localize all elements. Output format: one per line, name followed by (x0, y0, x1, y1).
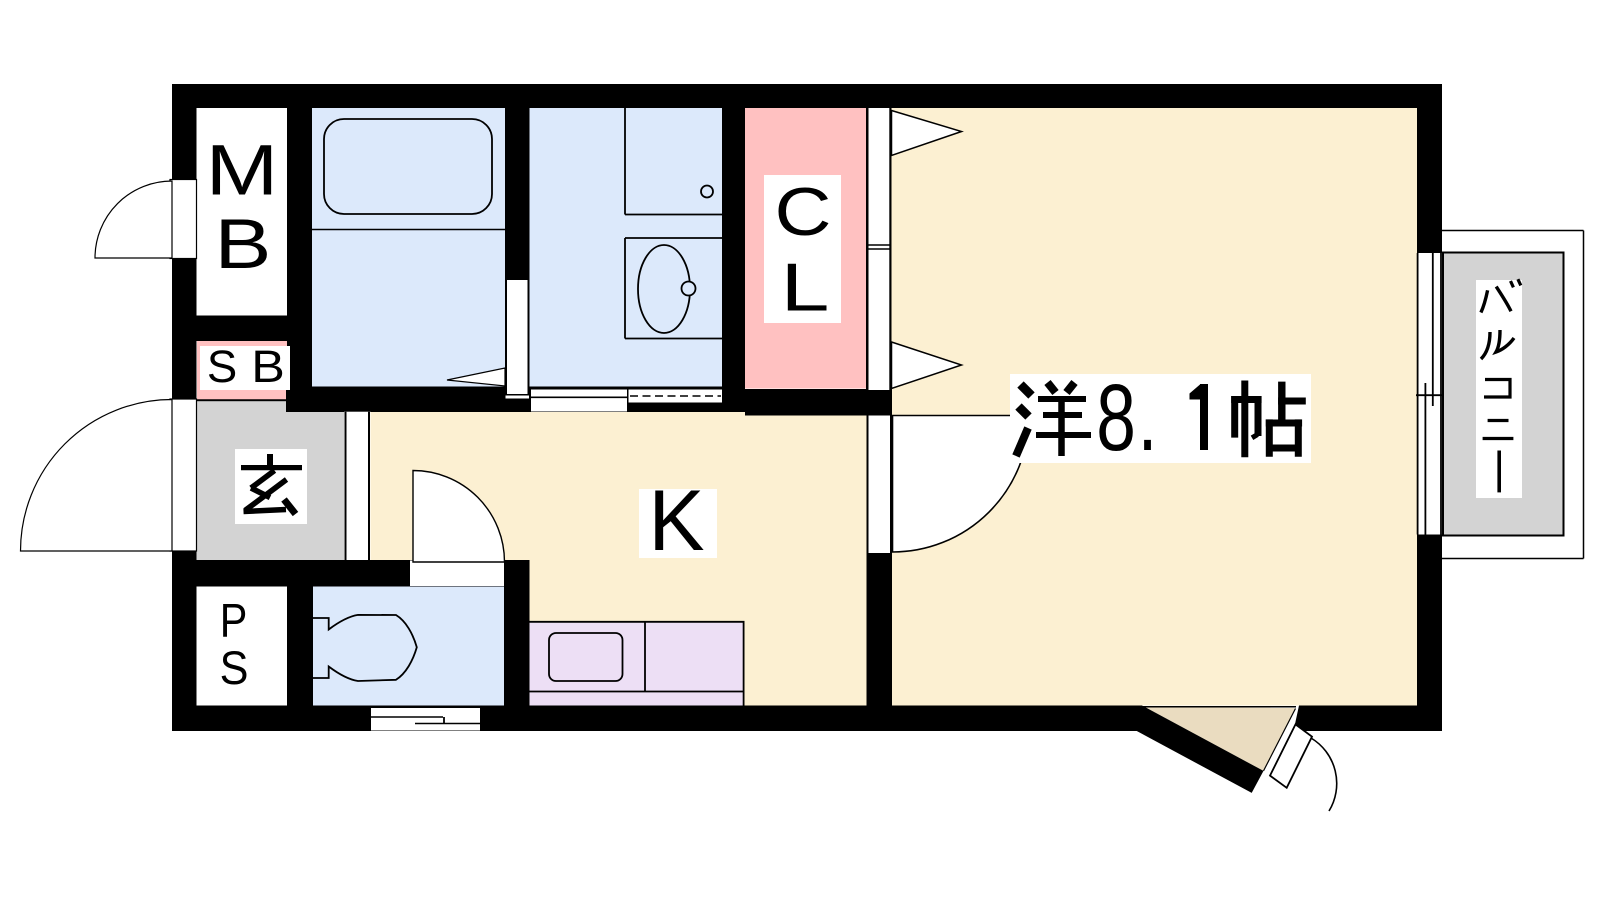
svg-text:M: M (206, 130, 279, 210)
svg-text:S: S (207, 341, 237, 392)
svg-text:L: L (781, 249, 830, 325)
svg-text:K: K (648, 473, 704, 569)
svg-text:B: B (215, 204, 272, 283)
svg-text:S: S (220, 641, 249, 694)
svg-text:8: 8 (1096, 364, 1136, 470)
svg-text:P: P (220, 595, 248, 647)
svg-text:B: B (251, 342, 285, 392)
svg-text:C: C (775, 173, 832, 250)
svg-text:.: . (1138, 364, 1158, 470)
